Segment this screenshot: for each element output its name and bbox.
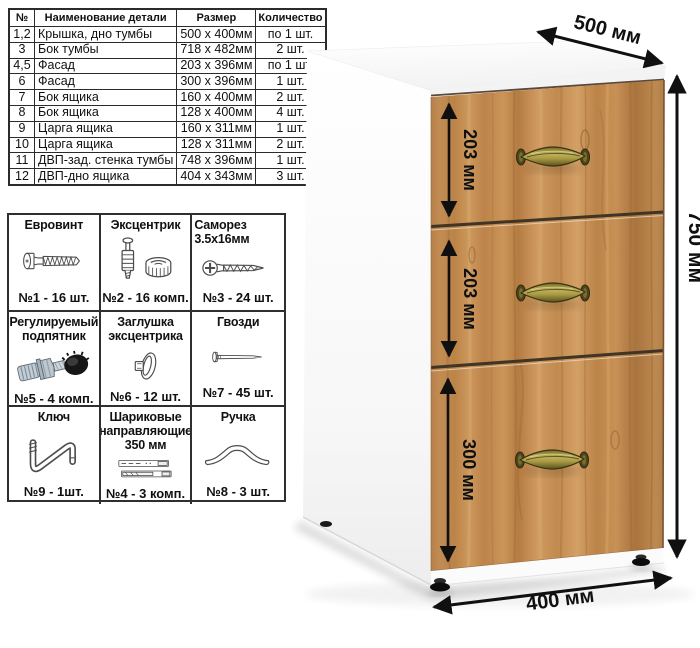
side-panel (303, 51, 431, 585)
dim-height-label: 750 мм (684, 211, 700, 283)
drawer3-dim-label: 300 мм (459, 439, 479, 501)
assembly-sheet: № Наименование детали Размер Количество … (0, 0, 700, 648)
cabinet-illustration: 500 мм 750 мм 400 мм 203 мм 203 мм 300 м… (0, 0, 700, 648)
drawer2-dim-label: 203 мм (460, 268, 480, 330)
drawer1-dim-label: 203 мм (460, 129, 480, 191)
